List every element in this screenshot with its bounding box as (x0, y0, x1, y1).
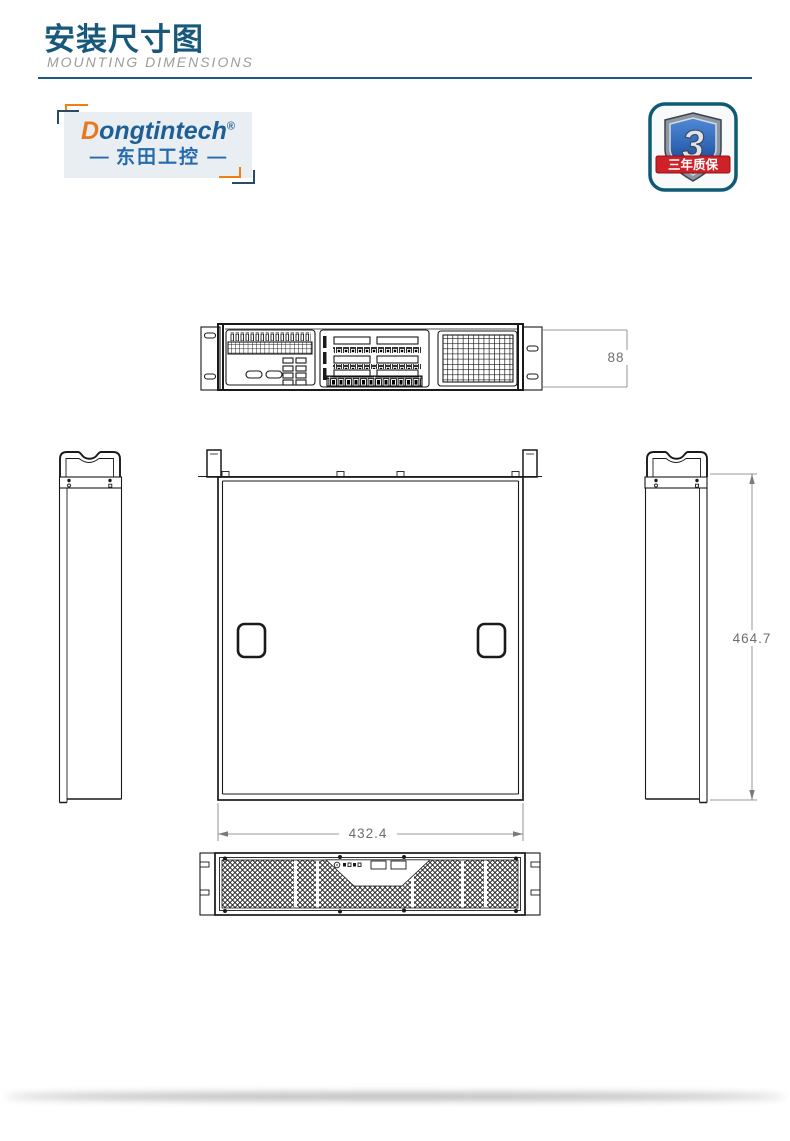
led-indicator-icon (343, 863, 346, 867)
dim-width: 432.4 (218, 803, 523, 841)
mounting-dimensions-page: 安装尺寸图 MOUNTING DIMENSIONS Dongtintech® —… (0, 0, 790, 1141)
dim-depth-label: 464.7 (733, 631, 772, 646)
dim-width-label: 432.4 (349, 826, 388, 841)
mounting-drawing: 88 432. (0, 0, 790, 1141)
dim-height: 88 (542, 330, 631, 387)
handle-cutout (238, 624, 265, 657)
left-side-view (60, 452, 122, 803)
dim-depth: 464.7 (710, 474, 778, 800)
rear-io-section (226, 330, 315, 385)
handle-cutout (478, 624, 505, 657)
front-view (200, 853, 540, 915)
rear-panel-view: 88 (201, 324, 631, 390)
led-indicator-icon (353, 863, 356, 867)
page-bottom-shadow (4, 1093, 786, 1100)
right-side-view: 464.7 (645, 452, 778, 803)
top-view: 432.4 (198, 450, 542, 841)
rear-fan-grille (438, 331, 517, 386)
rear-expansion-section (320, 330, 429, 387)
front-mesh (222, 860, 518, 908)
dim-height-label: 88 (607, 350, 624, 365)
